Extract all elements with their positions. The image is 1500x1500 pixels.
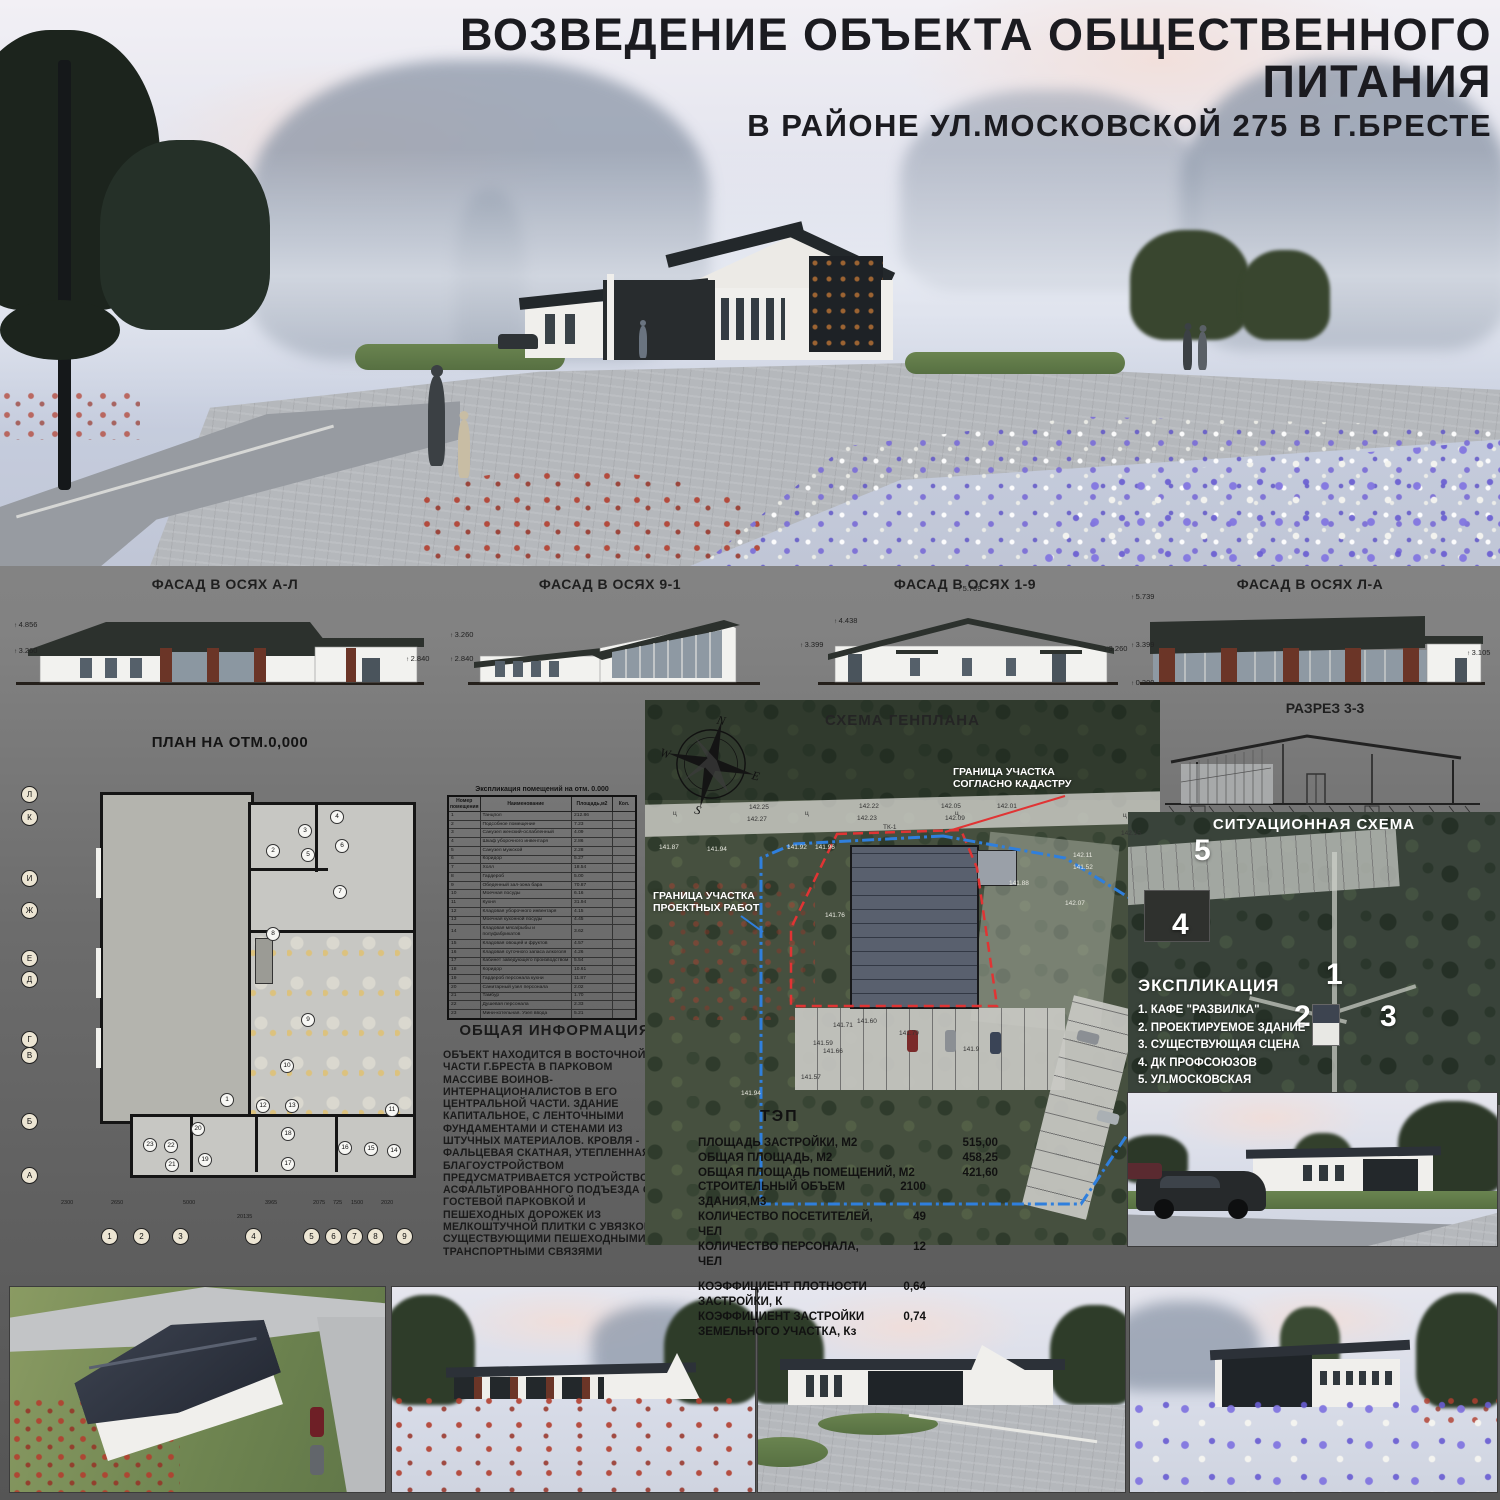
room-number: 7 [333, 885, 347, 899]
axis-bubble: Г [21, 1031, 38, 1048]
title-line-1: ВОЗВЕДЕНИЕ ОБЪЕКТА ОБЩЕСТВЕННОГО ПИТАНИЯ [236, 12, 1492, 106]
room-number: 16 [338, 1141, 352, 1155]
window-gap [96, 1028, 101, 1068]
explication-item: 3. СУЩЕСТВУЮЩАЯ СЦЕНА [1138, 1039, 1418, 1051]
dimension-label: 2075 [313, 1200, 325, 1206]
general-info: ОБЩАЯ ИНФОРМАЦИЯ ОБЪЕКТ НАХОДИТСЯ В ВОСТ… [443, 1022, 667, 1258]
cadastre-boundary-label: ГРАНИЦА УЧАСТКА СОГЛАСНО КАДАСТРУ [953, 766, 1133, 790]
window [721, 298, 785, 340]
axis-bubble: К [21, 809, 38, 826]
dimension-label: 2020 [381, 1200, 393, 1206]
car [310, 1407, 324, 1437]
dimension-label: 2300 [61, 1200, 73, 1206]
elevation-mark: 2.840 [450, 654, 473, 663]
spot-elevation: 141.88 [1009, 880, 1029, 887]
flower-meadow [1130, 1399, 1497, 1492]
axis-bubble: Б [21, 1113, 38, 1130]
dimension-label: 20135 [237, 1214, 252, 1220]
table-row: 12Кладовая уборочного инвентаря4.15 [448, 907, 636, 916]
elevation-mark: 3.260 [14, 646, 37, 655]
explication-item: 4. ДК ПРОФСОЮЗОВ [1138, 1057, 1418, 1069]
spot-elevation: 141.66 [823, 1048, 843, 1055]
spot-elevation: 141.59 [813, 1040, 833, 1047]
table-row: 5Санузел мужской2.28 [448, 846, 636, 855]
spot-elevation: 141.52 [1073, 864, 1093, 871]
tree [1416, 1293, 1497, 1408]
facade-drawing-a-l [10, 596, 440, 691]
spot-elevation: 142.05 [941, 803, 961, 810]
room-number: 17 [281, 1157, 295, 1171]
room-number: 11 [385, 1103, 399, 1117]
axis-bubble: 3 [172, 1228, 189, 1245]
entrance [1363, 1159, 1418, 1195]
axis-bubble: Л [21, 786, 38, 803]
table-row: 20Санитарный узел персонала2.02 [448, 983, 636, 992]
tep-row: ОБЩАЯ ПЛОЩАДЬ, М2458,25 [698, 1151, 998, 1166]
spot-elevation: 141.94 [741, 1090, 761, 1097]
tep-row: КОЭФФИЦИЕНТ ЗАСТРОЙКИ ЗЕМЕЛЬНОГО УЧАСТКА… [698, 1310, 998, 1340]
explication-item: 5. УЛ.МОСКОВСКАЯ [1138, 1074, 1418, 1086]
tep-row: КОЭФФИЦИЕНТ ПЛОТНОСТИ ЗАСТРОЙКИ, К0,64 [698, 1280, 998, 1310]
spot-elevation: 141.76 [825, 912, 845, 919]
situation-marker: 4 [1172, 908, 1189, 942]
facade-a-l: ФАСАД В ОСЯХ А-Л 4.8563.2602.840 [10, 576, 440, 694]
table-row: 23Мини-котельная. Узел ввода5.21 [448, 1009, 636, 1018]
car [498, 334, 538, 349]
table-row: 1Танцпол212.86 [448, 812, 636, 821]
col-count: Кол. [613, 796, 637, 812]
room-number: 10 [280, 1059, 294, 1073]
render-photo-car [1128, 1093, 1497, 1246]
inner-wall [315, 802, 318, 872]
terrace-recess [603, 280, 715, 360]
window [806, 1375, 846, 1397]
room-number: 12 [256, 1099, 270, 1113]
axis-bubble: 6 [325, 1228, 342, 1245]
spot-elevation: 141.92 [787, 844, 807, 851]
table-row: 4Шкаф уборочного инвентаря2.86 [448, 838, 636, 847]
svg-text:E: E [749, 768, 761, 784]
elevation-mark: 4.438 [834, 616, 857, 625]
table-row: 17Кабинет заведующего производством5.54 [448, 957, 636, 966]
facade-title: ФАСАД В ОСЯХ 9-1 [450, 576, 770, 592]
elevation-mark: 3.399 [800, 640, 823, 649]
general-info-text: ОБЪЕКТ НАХОДИТСЯ В ВОСТОЧНОЙ ЧАСТИ Г.БРЕ… [443, 1049, 667, 1258]
dimension-label: 2650 [111, 1200, 123, 1206]
spot-elevation: 141.79 [899, 1030, 919, 1037]
facade-title: ФАСАД В ОСЯХ Л-А [1125, 576, 1495, 592]
table-caption: Экспликация помещений на отм. 0.000 [447, 786, 637, 793]
facade-9-1: ФАСАД В ОСЯХ 9-1 3.2602.840 [450, 576, 770, 694]
axis-bubble: Д [21, 971, 38, 988]
table-row: 14Кладовая мяса/рыбы и полуфабрикатов3.6… [448, 925, 636, 940]
hall-room [100, 792, 254, 1124]
wheel [1154, 1199, 1174, 1219]
spot-elevation: 141.57 [801, 1074, 821, 1081]
room-number: 4 [330, 810, 344, 824]
room-number: 8 [266, 927, 280, 941]
inner-wall [248, 868, 328, 871]
grass-island [905, 352, 1125, 374]
spot-elevation: 141.96 [815, 844, 835, 851]
window-gap [96, 848, 101, 898]
spot-elevation: 142.22 [859, 803, 879, 810]
elevation-mark: 5.739 [1131, 592, 1154, 601]
col-name: Наименование [480, 796, 572, 812]
person [639, 326, 647, 358]
poster-title: ВОЗВЕДЕНИЕ ОБЪЕКТА ОБЩЕСТВЕННОГО ПИТАНИЯ… [236, 12, 1492, 144]
room-number: 6 [335, 839, 349, 853]
window-band [1320, 1371, 1395, 1385]
table-row: 11Кухня31.94 [448, 899, 636, 908]
wheel [1228, 1199, 1248, 1219]
explication-item: 1. КАФЕ "РАЗВИЛКА" [1138, 1004, 1418, 1016]
inner-wall [255, 1114, 258, 1172]
tep-row: ПЛОЩАДЬ ЗАСТРОЙКИ, М2515,00 [698, 1136, 998, 1151]
table-row: 3Санузел женский-ослабленный4.09 [448, 829, 636, 838]
bar-counter [255, 938, 273, 984]
spot-elevation: 142.07 [1065, 900, 1085, 907]
spot-elevation: ц [955, 810, 959, 817]
axis-bubble: 1 [101, 1228, 118, 1245]
elevation-mark: 4.856 [14, 620, 37, 629]
window-gap [96, 948, 101, 998]
situation-title: СИТУАЦИОННАЯ СХЕМА [1128, 816, 1500, 833]
window [565, 314, 575, 344]
room-number: 15 [364, 1142, 378, 1156]
elevation-mark: 3.105 [1467, 648, 1490, 657]
room-number: 23 [143, 1138, 157, 1152]
flower-meadow [392, 1395, 755, 1492]
table-row: 10Моечная посуды6.16 [448, 890, 636, 899]
col-area: Площадь,м2 [572, 796, 613, 812]
tep-block: ТЭП ПЛОЩАДЬ ЗАСТРОЙКИ, М2515,00 ОБЩАЯ ПЛ… [698, 1108, 998, 1340]
tep-row: КОЛИЧЕСТВО ПОСЕТИТЕЛЕЙ, ЧЕЛ49 [698, 1210, 998, 1240]
facade-drawing-9-1 [450, 596, 770, 691]
room-number: 2 [266, 844, 280, 858]
spot-elevation: 142.25 [749, 804, 769, 811]
tree-branch [0, 300, 120, 360]
inner-wall [335, 1114, 338, 1172]
car-window [1160, 1176, 1220, 1188]
tep-title: ТЭП [760, 1108, 998, 1126]
tep-row: КОЛИЧЕСТВО ПЕРСОНАЛА, ЧЕЛ12 [698, 1240, 998, 1270]
elevation-mark: 3.399 [1131, 640, 1154, 649]
general-info-title: ОБЩАЯ ИНФОРМАЦИЯ [443, 1022, 667, 1039]
window [545, 314, 555, 344]
tep-row: ОБЩАЯ ПЛОЩАДЬ ПОМЕЩЕНИЙ, М2421,60 [698, 1166, 998, 1181]
explication-list: ЭКСПЛИКАЦИЯ 1. КАФЕ "РАЗВИЛКА"2. ПРОЕКТИ… [1138, 976, 1418, 1092]
table-row: 18Коридор10.61 [448, 966, 636, 975]
genplan-title: СХЕМА ГЕНПЛАНА [645, 712, 1160, 729]
pedestrian [1198, 332, 1207, 370]
facade-title: ФАСАД В ОСЯХ А-Л [10, 576, 440, 592]
tree-trunk [58, 60, 71, 490]
spot-elevation: 142.23 [857, 815, 877, 822]
room-number: 13 [285, 1099, 299, 1113]
spot-elevation: ц [1123, 812, 1127, 819]
table-row: 6Коридор5.27 [448, 855, 636, 864]
tep-row: СТРОИТЕЛЬНЫЙ ОБЪЕМ ЗДАНИЯ,М32100 [698, 1180, 998, 1210]
render-photo-aerial [10, 1287, 385, 1492]
plan-title: ПЛАН НА ОТМ.0,000 [15, 734, 445, 751]
axis-bubble: 9 [396, 1228, 413, 1245]
room-number: 14 [387, 1144, 401, 1158]
axis-bubble: А [21, 1167, 38, 1184]
elevation-mark: 3.260 [450, 630, 473, 639]
tree [1050, 1305, 1125, 1405]
table-row: 16Кладовая суточного запаса алкоголя4.26 [448, 948, 636, 957]
spot-elevation: 142.01 [997, 803, 1017, 810]
explication-title: ЭКСПЛИКАЦИЯ [1138, 976, 1418, 996]
room-number: 5 [301, 848, 315, 862]
table-row: 13Моечная кухонной посуды4.45 [448, 916, 636, 925]
table-row: 8Гардероб5.00 [448, 873, 636, 882]
rooms-explication-table: Экспликация помещений на отм. 0.000 Номе… [447, 786, 637, 1020]
room-number: 22 [164, 1139, 178, 1153]
facade-drawing-1-9 [800, 596, 1130, 691]
father [428, 376, 445, 466]
facade-1-9: ФАСАД В ОСЯХ 1-9 5.7394.4383.3993.260 [800, 576, 1130, 694]
pedestrian [1183, 330, 1192, 370]
room-number: 21 [165, 1158, 179, 1172]
dimension-label: 5000 [183, 1200, 195, 1206]
elevation-mark: 5.739 [958, 584, 981, 593]
glazed-corner [809, 256, 883, 352]
axis-bubble: Ж [21, 902, 38, 919]
spot-elevation: ТК-1 [883, 824, 897, 831]
tree-canopy [100, 140, 270, 330]
spot-elevation: ц [805, 810, 809, 817]
room-number: 20 [191, 1122, 205, 1136]
elevation-mark: 3.260 [1104, 644, 1127, 653]
corner-pillar [881, 280, 893, 360]
axis-bubble: 8 [367, 1228, 384, 1245]
roof-fascia [780, 1359, 1065, 1370]
table-row: 19Гардероб персонала кухни11.87 [448, 975, 636, 984]
terrace-glazing [868, 1371, 963, 1407]
room-number: 18 [281, 1127, 295, 1141]
elevation-mark: 0.300 [1131, 678, 1154, 687]
svg-text:W: W [659, 745, 674, 761]
axis-bubble: И [21, 870, 38, 887]
axis-bubble: В [21, 1047, 38, 1064]
dimension-label: 725 [333, 1200, 342, 1206]
room-number: 9 [301, 1013, 315, 1027]
svg-text:S: S [693, 803, 702, 816]
spot-elevation: 141.60 [857, 1018, 877, 1025]
col-number: Номер помещения [448, 796, 480, 812]
table-row: 2Подсобное помещение7.23 [448, 820, 636, 829]
table-row: 7Холл18.54 [448, 864, 636, 873]
dimension-label: 3965 [265, 1200, 277, 1206]
spot-elevation: 141.9 [963, 1046, 979, 1053]
project-boundary-label: ГРАНИЦА УЧАСТКА ПРОЕКТНЫХ РАБОТ [653, 890, 783, 914]
section-title: РАЗРЕЗ 3-3 [1155, 700, 1495, 716]
terrace-column [607, 274, 614, 360]
building-render [525, 222, 900, 377]
spot-elevation: 142.27 [747, 816, 767, 823]
elevation-mark: 2.840 [406, 654, 429, 663]
axis-bubble: 4 [245, 1228, 262, 1245]
render-photo-meadow-angle [1130, 1287, 1497, 1492]
room-number: 19 [198, 1153, 212, 1167]
axis-bubble: 7 [346, 1228, 363, 1245]
situation-marker: 5 [1194, 834, 1211, 868]
spot-elevation: 141.71 [833, 1022, 853, 1029]
dimension-label: 1500 [351, 1200, 363, 1206]
floor-plan: ПЛАН НА ОТМ.0,000 ЛКИЖЕДГВБА 123456789 1… [15, 728, 445, 1268]
table-row: 22Душевая персонала2.33 [448, 1001, 636, 1010]
axis-bubble: 2 [133, 1228, 150, 1245]
table-row: 15Кладовая овощей и фруктов4.57 [448, 940, 636, 949]
spot-elevation: 141.94 [707, 846, 727, 853]
facade-l-a: ФАСАД В ОСЯХ Л-А 5.7393.3990.3003.105 [1125, 576, 1495, 694]
explication-item: 2. ПРОЕКТИРУЕМОЕ ЗДАНИЕ [1138, 1022, 1418, 1034]
spot-elevation: 142.11 [1073, 852, 1092, 859]
dining-room [248, 930, 416, 1120]
mid-trees [1240, 250, 1330, 340]
room-number: 3 [298, 824, 312, 838]
title-line-2: В РАЙОНЕ УЛ.МОСКОВСКОЙ 275 В Г.БРЕСТЕ [236, 108, 1492, 144]
child [458, 420, 470, 478]
car-red [1128, 1163, 1162, 1179]
window [1303, 1165, 1351, 1181]
table-row: 9Обеденный зал-зона бара70.87 [448, 881, 636, 890]
facade-drawing-l-a [1125, 596, 1495, 691]
main-render: ВОЗВЕДЕНИЕ ОБЪЕКТА ОБЩЕСТВЕННОГО ПИТАНИЯ… [0, 0, 1500, 566]
car [310, 1445, 324, 1475]
axis-bubble: 5 [303, 1228, 320, 1245]
axis-bubble: Е [21, 950, 38, 967]
room-number: 1 [220, 1093, 234, 1107]
spot-elevation: 141.87 [659, 844, 679, 851]
spot-elevation: ц [673, 810, 677, 817]
table-row: 21Тамбур1.70 [448, 992, 636, 1001]
